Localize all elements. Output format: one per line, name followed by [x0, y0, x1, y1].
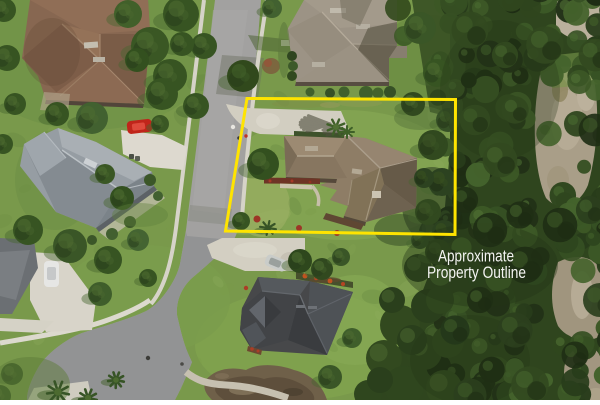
svg-text:Property Outline: Property Outline — [427, 264, 526, 282]
svg-text:Approximate: Approximate — [438, 248, 514, 266]
